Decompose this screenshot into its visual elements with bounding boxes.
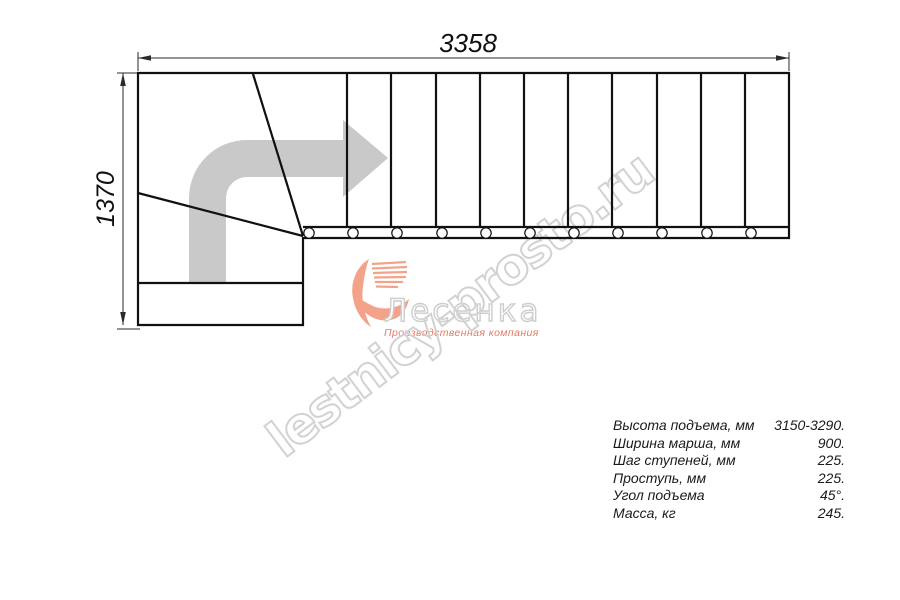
spec-label: Масса, кг	[613, 505, 676, 523]
spec-label: Высота подъема, мм	[613, 417, 755, 435]
spec-label: Угол подъема	[613, 487, 705, 505]
spec-row: Угол подъема 45°.	[613, 487, 845, 505]
watermark-text: lestnicy-prosto.ru	[256, 141, 663, 468]
spec-value: 225.	[818, 470, 845, 488]
direction-arrow	[189, 120, 388, 282]
specs-table: Высота подъема, мм 3150-3290. Ширина мар…	[613, 417, 845, 523]
spec-value: 45°.	[820, 487, 845, 505]
spec-value: 245.	[818, 505, 845, 523]
spec-value: 225.	[818, 452, 845, 470]
balusters	[304, 228, 756, 238]
dimension-width-label: 3358	[439, 28, 497, 58]
spec-row: Ширина марша, мм 900.	[613, 435, 845, 453]
dimension-width: 3358	[138, 28, 789, 71]
dim-arrow-left-icon	[138, 55, 151, 61]
dim-arrow-up-icon	[120, 73, 126, 86]
spec-label: Проступь, мм	[613, 470, 706, 488]
dimension-height: 1370	[92, 73, 140, 329]
spec-label: Ширина марша, мм	[613, 435, 740, 453]
spec-label: Шаг ступеней, мм	[613, 452, 736, 470]
spec-row: Проступь, мм 225.	[613, 470, 845, 488]
dim-arrow-right-icon	[776, 55, 789, 61]
dimension-height-label: 1370	[92, 171, 120, 227]
stair-drawing-canvas: Лесенка Производственная компания lestni…	[0, 0, 900, 600]
spec-value: 3150-3290.	[774, 417, 845, 435]
spec-row: Масса, кг 245.	[613, 505, 845, 523]
dim-arrow-down-icon	[120, 312, 126, 325]
spec-row: Высота подъема, мм 3150-3290.	[613, 417, 845, 435]
spec-row: Шаг ступеней, мм 225.	[613, 452, 845, 470]
spec-value: 900.	[818, 435, 845, 453]
